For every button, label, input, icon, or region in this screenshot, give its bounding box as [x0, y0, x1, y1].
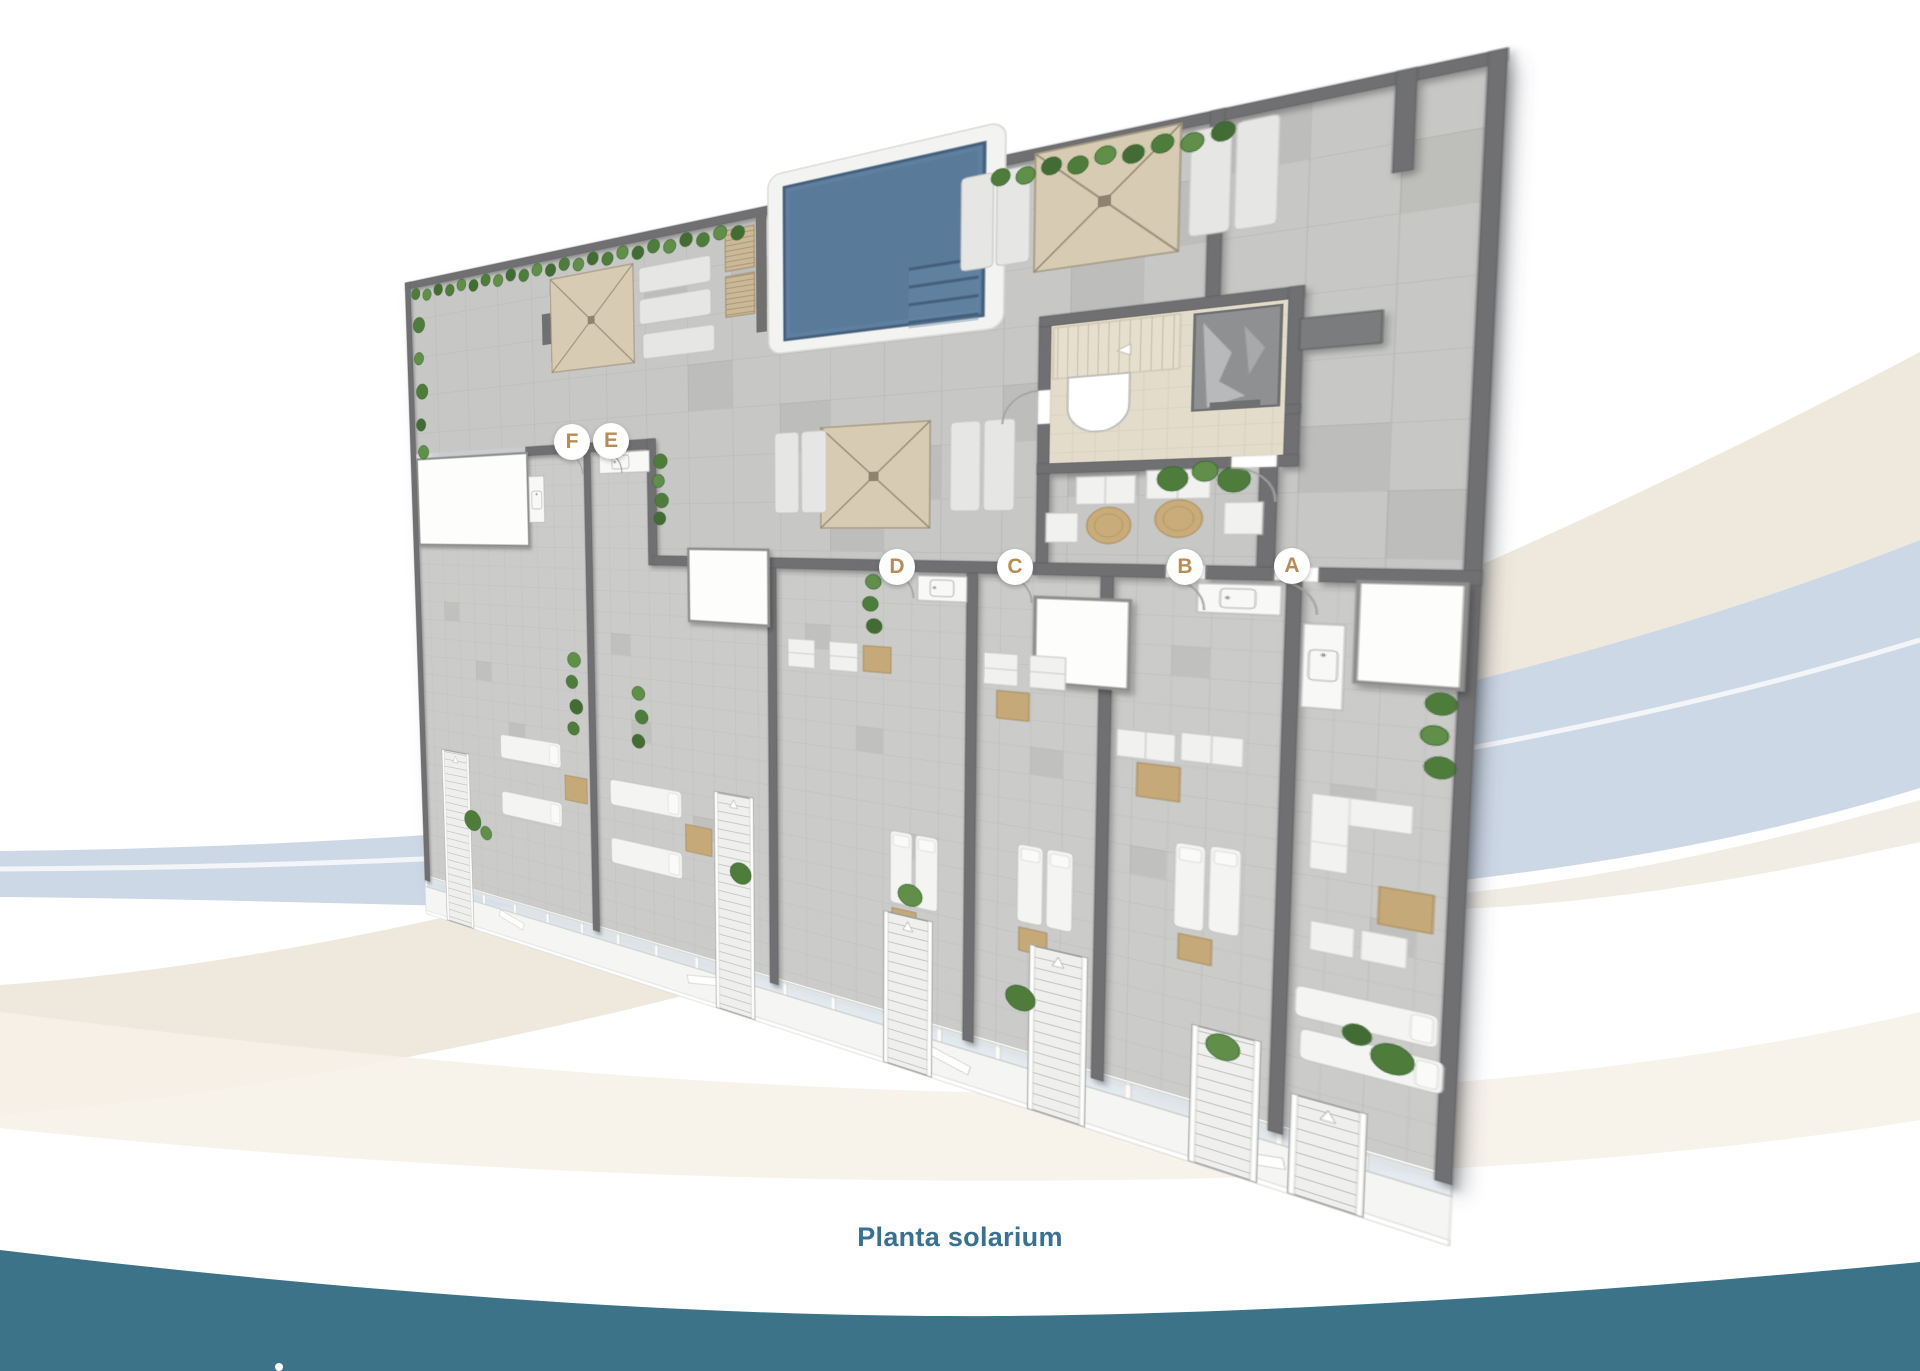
elevator: [1192, 305, 1281, 411]
unit-label-d: D: [879, 549, 915, 585]
unit-label-b: B: [1167, 549, 1203, 585]
pergola-2: [821, 421, 931, 528]
unit-label-a: A: [1274, 548, 1310, 584]
stair-room-f: [417, 453, 529, 546]
kitchenette-b: [1197, 583, 1282, 615]
kitchenette-f: [529, 476, 545, 522]
pergola-1: [541, 264, 634, 374]
unit-label-e: E: [593, 423, 629, 459]
kitchenette-d: [918, 576, 967, 603]
pergola-1-loungers: [639, 254, 715, 359]
staircase-e: [714, 792, 754, 1020]
logo-fragment: [275, 1363, 283, 1371]
brochure-page: F E D C B A Planta solarium: [0, 0, 1920, 1371]
stair-room-e: [688, 549, 769, 626]
round-table: [1086, 507, 1131, 544]
staircase-d: [884, 911, 932, 1077]
round-table: [1155, 499, 1203, 537]
unit-label-f: F: [554, 424, 590, 460]
kitchenette-a: [1301, 624, 1346, 711]
staircase-c: [1028, 945, 1087, 1126]
stair-lobby: [1049, 299, 1288, 463]
staircase-f: [442, 750, 474, 929]
bottom-wave-teal: [0, 1250, 1920, 1371]
stair-room-a: [1355, 582, 1467, 690]
unit-label-c: C: [997, 549, 1033, 585]
plan-caption: Planta solarium: [0, 1222, 1920, 1253]
